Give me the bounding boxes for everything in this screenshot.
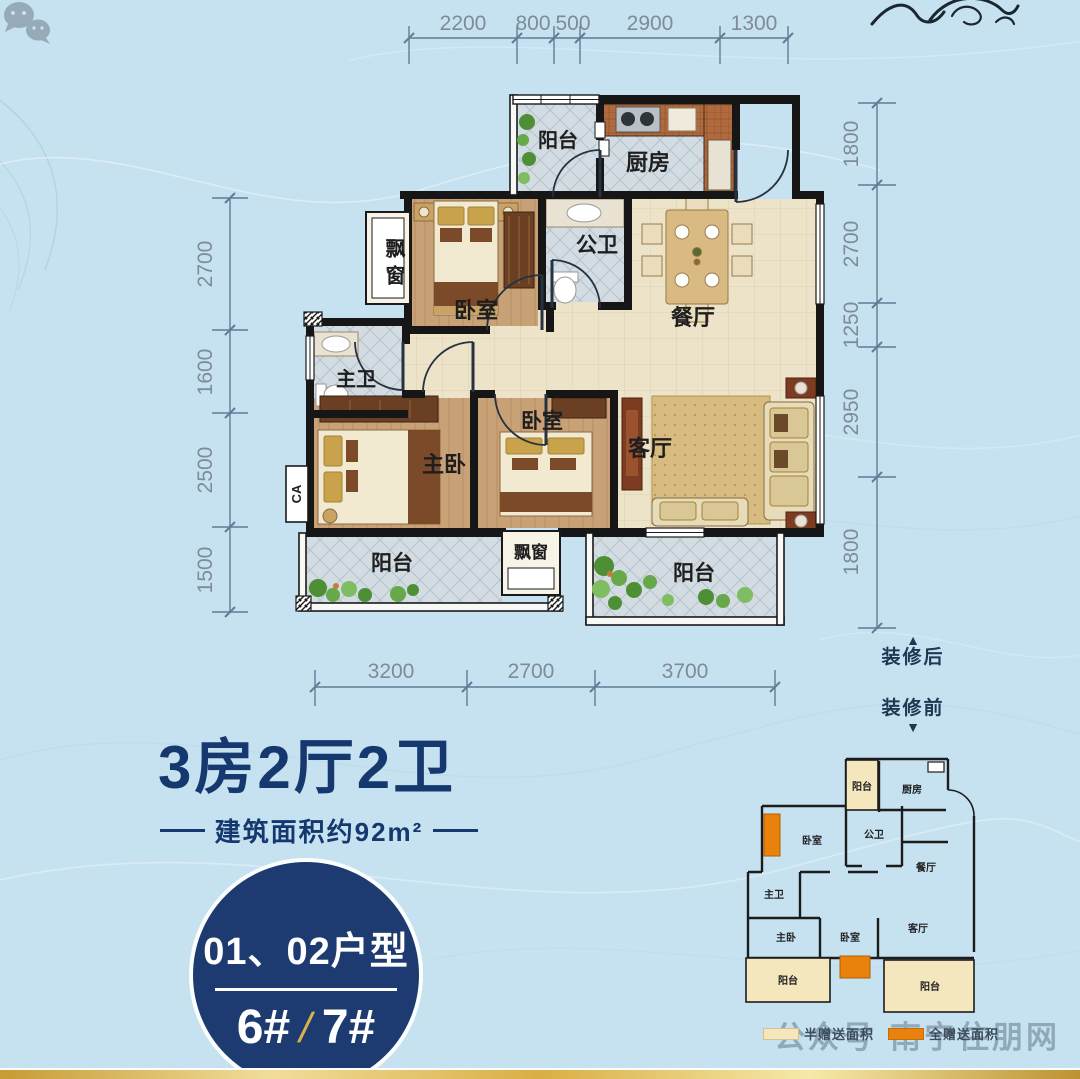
title-dash-right: [433, 829, 478, 832]
building-slash: /: [295, 1004, 317, 1052]
inset-label-master-bath: 主卫: [764, 888, 784, 901]
inset-label-dining: 餐厅: [915, 861, 936, 874]
room-label-kitchen: 厨房: [626, 150, 670, 175]
dimension-left: 2700 1600 2500 1500: [194, 193, 248, 617]
legend-half-label: 半赠送面积: [804, 1024, 874, 1043]
legend-full-swatch: [888, 1028, 924, 1040]
legend-full-label: 全赠送面积: [929, 1024, 999, 1043]
building-numbers: 6# / 7#: [237, 1000, 375, 1055]
unit-numbers: 01、02户型: [203, 920, 409, 975]
room-label-living: 客厅: [628, 436, 672, 461]
unit-badge: 01、02户型 6# / 7#: [189, 858, 423, 1079]
dim-label: 500: [555, 12, 590, 35]
room-label-balcony-left: 阳台: [371, 551, 413, 575]
triangle-down-icon: ▼: [858, 720, 968, 734]
dim-label: 1800: [840, 121, 863, 168]
title-dash-left: [160, 829, 205, 832]
wechat-icon: [0, 0, 54, 46]
badge-divider: [215, 988, 397, 991]
floor-plan: 阳台 厨房 卧室 公卫 餐厅 主卫 主卧 卧室 客厅 阳台 飘窗 阳台 CA: [286, 95, 824, 625]
legend-half-swatch: [763, 1028, 799, 1040]
dim-label: 3200: [368, 660, 415, 683]
dim-label: 2200: [440, 12, 487, 35]
room-label-master-bedroom: 主卧: [422, 452, 466, 477]
room-label-balcony-right: 阳台: [673, 561, 715, 585]
inset-label-living: 客厅: [907, 922, 928, 935]
room-label-bay-side: 飘窗: [372, 227, 408, 303]
inset-label-balcony-top: 阳台: [852, 780, 872, 793]
triangle-up-icon: ▲: [858, 633, 968, 647]
building-b: 7#: [322, 1000, 375, 1055]
duct-label: CA: [289, 484, 304, 503]
dim-label: 2500: [194, 447, 217, 494]
dim-label: 3700: [662, 660, 709, 683]
room-label-master-bath: 主卫: [336, 367, 376, 391]
inset-label-balcony-left: 阳台: [778, 974, 798, 987]
dimension-bottom: 3200 2700 3700: [310, 660, 780, 706]
inset-label-kitchen: 厨房: [902, 783, 922, 796]
floorplan-canvas: 2200 800 500 2900 1300 2700 1600 2500 15…: [0, 0, 1080, 1079]
title-block: 3房2厅2卫 建筑面积约92m²: [158, 738, 478, 849]
dim-label: 2700: [194, 241, 217, 288]
dim-label: 1300: [731, 12, 778, 35]
page-title: 3房2厅2卫: [158, 738, 478, 798]
room-label-bedroom-mid: 卧室: [521, 409, 563, 433]
decorated-after-label: ▲ 装修后: [858, 633, 968, 669]
gold-strip: [0, 1068, 1080, 1079]
dim-label: 2700: [840, 221, 863, 268]
inset-label-bedroom-top: 卧室: [802, 834, 822, 847]
inset-label-public-bath: 公卫: [864, 829, 884, 841]
room-label-balcony-top: 阳台: [538, 128, 578, 152]
inset-label-master-bedroom: 主卧: [776, 931, 796, 944]
dim-label: 1250: [840, 302, 863, 349]
brand-logo-partial-icon: [872, 0, 1018, 24]
dimension-right: 1800 2700 1250 2950 1800: [840, 98, 896, 633]
poster-page: 2200 800 500 2900 1300 2700 1600 2500 15…: [0, 0, 1080, 1079]
inset-label-balcony-right: 阳台: [920, 980, 940, 993]
dim-label: 2950: [840, 389, 863, 436]
decorated-before-label: 装修前 ▼: [858, 698, 968, 734]
dim-label: 2900: [627, 12, 674, 35]
room-label-bay-bottom: 飘窗: [514, 542, 548, 562]
area-legend: 半赠送面积 全赠送面积: [763, 1024, 999, 1043]
dim-label: 1500: [194, 547, 217, 594]
dim-label: 1800: [840, 529, 863, 576]
inset-plan: 阳台 厨房 卧室 公卫 餐厅 主卫 主卧 卧室 客厅 阳台 阳台: [746, 759, 974, 1012]
inset-label-bedroom-mid: 卧室: [840, 931, 860, 944]
dim-label: 2700: [508, 660, 555, 683]
room-label-public-bath: 公卫: [576, 234, 618, 257]
area-note: 建筑面积约92m²: [215, 812, 424, 849]
dim-label: 800: [515, 12, 550, 35]
room-label-bedroom-top: 卧室: [454, 298, 498, 323]
building-a: 6#: [237, 1000, 290, 1055]
dim-label: 1600: [194, 349, 217, 396]
room-label-dining: 餐厅: [671, 305, 715, 330]
